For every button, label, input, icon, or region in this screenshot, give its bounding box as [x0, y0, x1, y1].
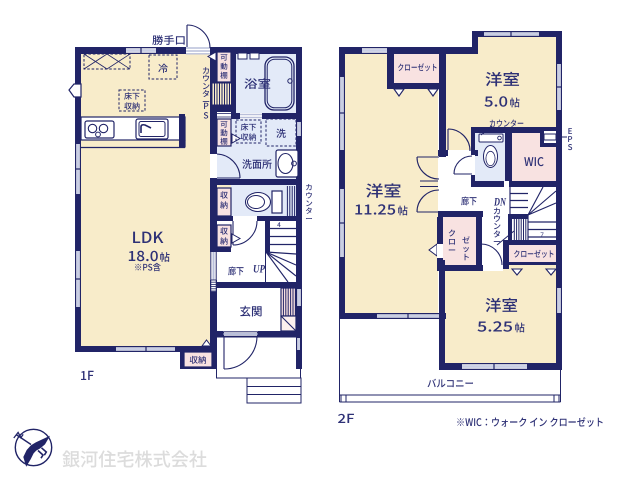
- svg-text:浴室: 浴室: [244, 76, 271, 92]
- svg-text:7: 7: [540, 229, 544, 239]
- svg-text:洋室: 洋室: [485, 68, 520, 90]
- svg-text:廊下: 廊下: [228, 264, 244, 278]
- svg-text:棚: 棚: [220, 70, 228, 81]
- svg-text:洗面所: 洗面所: [242, 157, 272, 172]
- svg-text:カウンター: カウンター: [489, 118, 524, 130]
- svg-text:ト: ト: [462, 252, 470, 263]
- svg-text:5.0: 5.0: [484, 92, 508, 112]
- svg-text:1F: 1F: [80, 365, 94, 384]
- svg-text:洋室: 洋室: [485, 294, 518, 316]
- svg-text:収納: 収納: [124, 101, 140, 112]
- svg-text:廊下: 廊下: [461, 194, 477, 208]
- svg-text:洋室: 洋室: [366, 180, 402, 202]
- svg-text:ー: ー: [305, 214, 313, 225]
- svg-text:ー: ー: [448, 245, 456, 256]
- svg-text:S: S: [568, 142, 573, 153]
- svg-text:帖: 帖: [160, 250, 171, 265]
- svg-text:勝手口: 勝手口: [152, 33, 186, 48]
- svg-text:S: S: [203, 110, 208, 122]
- svg-text:ー: ー: [493, 236, 501, 247]
- svg-text:2F: 2F: [338, 408, 355, 427]
- svg-text:帖: 帖: [398, 204, 409, 219]
- svg-text:UP: UP: [253, 264, 266, 276]
- svg-text:WIC: WIC: [524, 153, 544, 170]
- svg-text:収納: 収納: [189, 354, 206, 366]
- svg-text:※PS含: ※PS含: [134, 261, 161, 274]
- svg-text:納: 納: [220, 200, 228, 211]
- svg-text:帖: 帖: [515, 321, 526, 336]
- svg-text:玄関: 玄関: [240, 304, 263, 320]
- svg-text:クローゼット: クローゼット: [514, 248, 555, 260]
- svg-text:冷: 冷: [158, 60, 168, 75]
- svg-text:4: 4: [277, 219, 281, 229]
- svg-text:クローゼット: クローゼット: [398, 62, 438, 74]
- svg-text:LDK: LDK: [132, 226, 165, 248]
- svg-text:※WIC：ウォーク イン クローゼット: ※WIC：ウォーク イン クローゼット: [456, 415, 604, 430]
- svg-text:洗: 洗: [276, 125, 286, 140]
- svg-text:銀河住宅株式会社: 銀河住宅株式会社: [62, 446, 207, 472]
- svg-text:5.25: 5.25: [477, 317, 513, 337]
- svg-text:帖: 帖: [510, 96, 521, 111]
- svg-text:収納: 収納: [241, 132, 257, 143]
- svg-text:棚: 棚: [220, 136, 228, 147]
- svg-text:11.25: 11.25: [354, 200, 396, 220]
- svg-text:バルコニー: バルコニー: [427, 375, 474, 390]
- svg-text:納: 納: [220, 236, 228, 247]
